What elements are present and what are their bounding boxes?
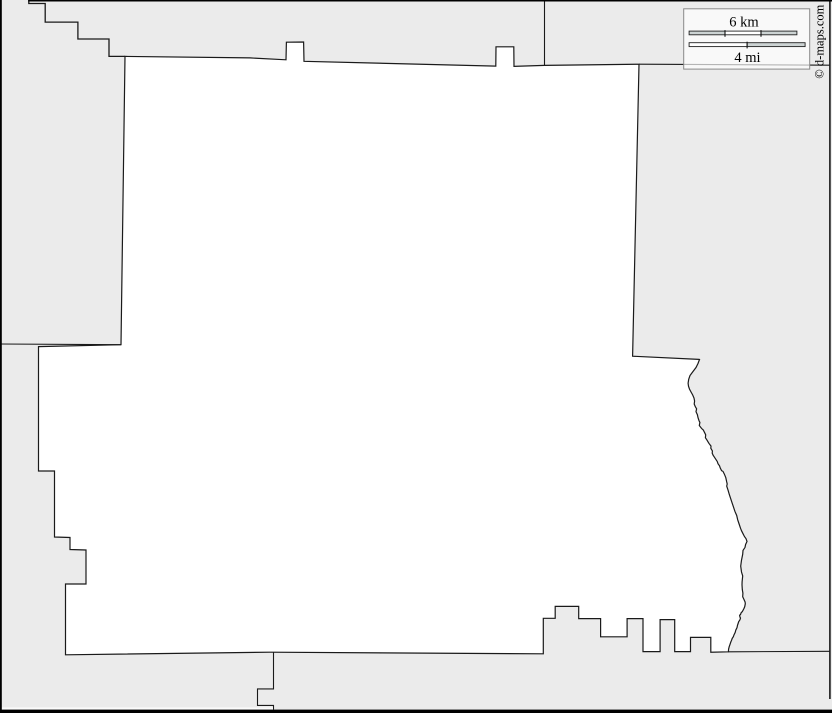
svg-text:6 km: 6 km	[729, 15, 759, 31]
svg-text:© d-maps.com: © d-maps.com	[813, 4, 827, 78]
svg-text:4 mi: 4 mi	[734, 50, 760, 66]
